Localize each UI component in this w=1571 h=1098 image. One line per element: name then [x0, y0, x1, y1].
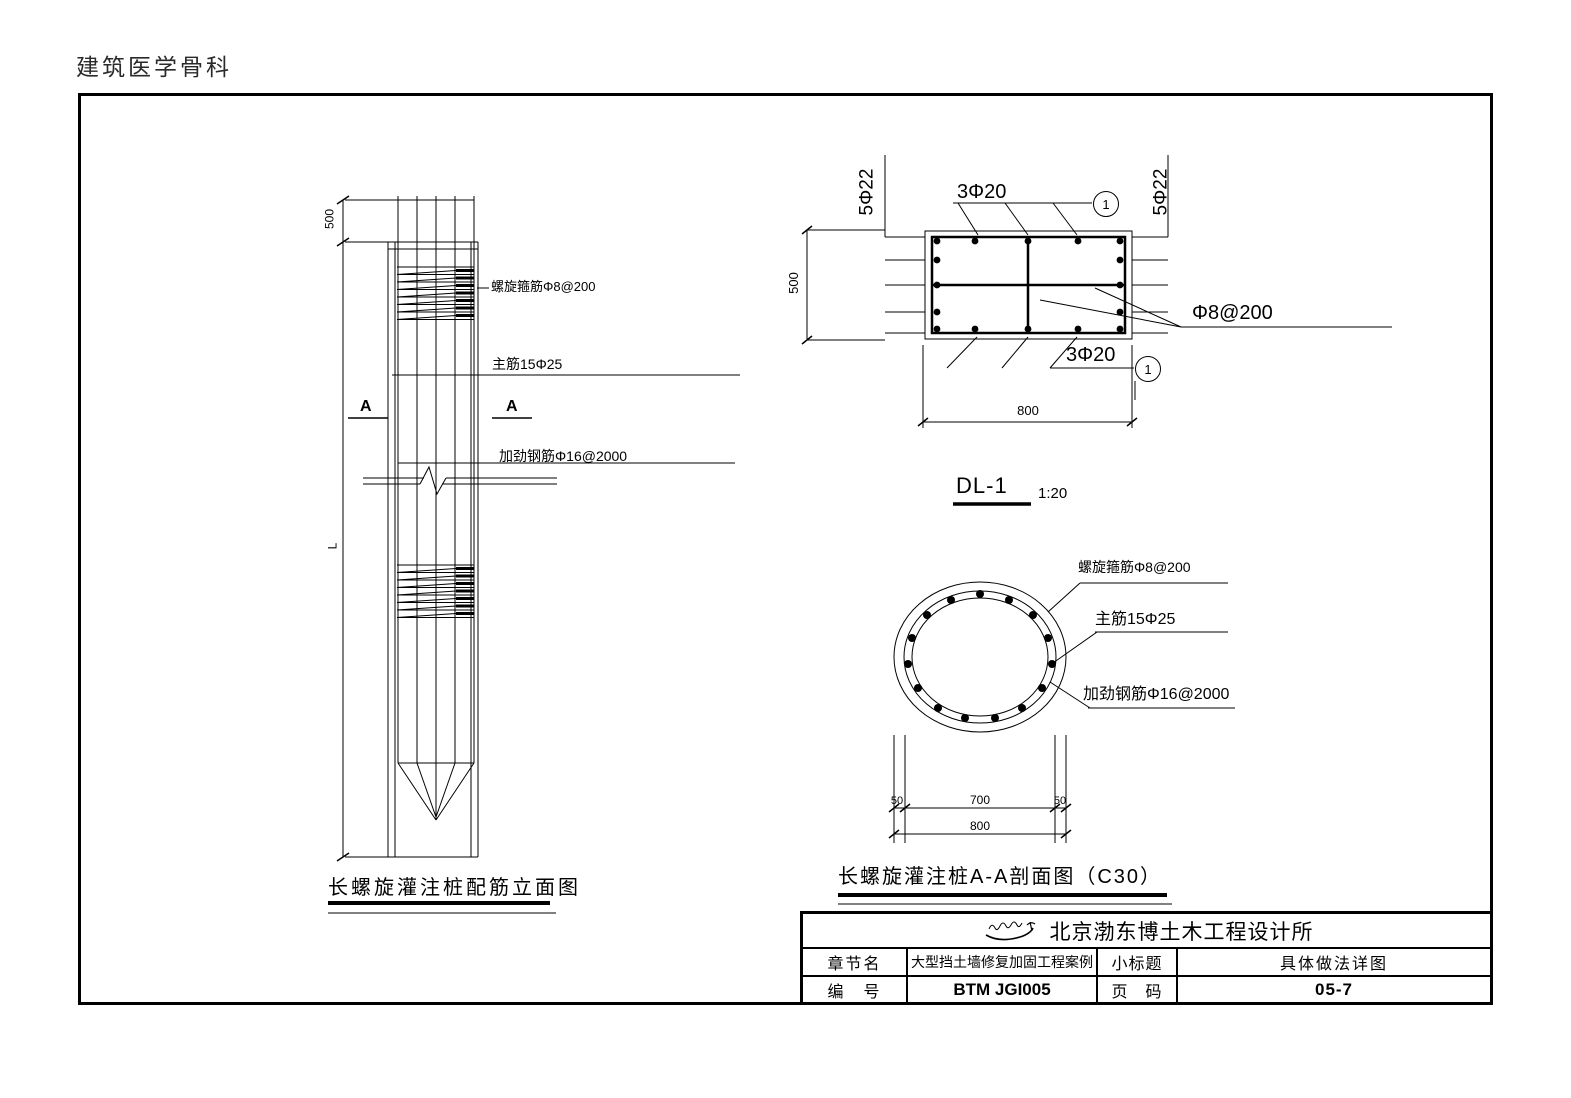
section-marker-a-right: A [506, 398, 518, 416]
dl1-scale-label: 1:20 [1038, 486, 1067, 503]
elevation-stiffener-annotation: 加劲钢筋Φ16@2000 [499, 449, 627, 464]
elevation-spiral-annotation: 螺旋箍筋Φ8@200 [491, 280, 596, 294]
callout-circle-1-bottom: 1 [1135, 356, 1161, 382]
circle-dim-800: 800 [970, 820, 990, 833]
dl1-stirrup-label: Φ8@200 [1192, 302, 1273, 324]
number-label: 编 号 [803, 977, 908, 1002]
dl1-dim-800: 800 [1017, 404, 1039, 418]
title-block-row-number: 编 号 BTM JGI005 页 码 05-7 [803, 977, 1490, 1002]
elevation-title: 长螺旋灌注桩配筋立面图 [328, 877, 581, 899]
elevation-dim-ticks [337, 196, 532, 861]
company-logo [980, 918, 1038, 944]
subtitle-label: 小标题 [1098, 949, 1178, 975]
dl1-dim-ticks [802, 226, 1137, 426]
section-marker-a-left: A [360, 398, 372, 416]
circular-section-lines [838, 582, 1235, 904]
circle-dim-50-right: 50 [1054, 795, 1066, 807]
section-aa-title: 长螺旋灌注桩A-A剖面图（C30） [838, 866, 1162, 888]
title-block: 北京渤东博土木工程设计所 章节名 大型挡土墙修复加固工程案例 小标题 具体做法详… [800, 911, 1493, 1005]
subtitle-value: 具体做法详图 [1178, 949, 1490, 975]
circle-dim-700: 700 [970, 794, 990, 807]
dl1-dim-500: 500 [787, 272, 801, 294]
elevation-main-bar-annotation: 主筋15Φ25 [492, 357, 562, 372]
drawing-sheet: 建筑医学骨科 [0, 0, 1571, 1098]
pile-elevation-lines [328, 196, 740, 913]
circle-dim-50-left: 50 [891, 795, 903, 807]
dl1-name-label: DL-1 [956, 474, 1008, 498]
chapter-value: 大型挡土墙修复加固工程案例 [908, 949, 1098, 975]
callout-number: 1 [1144, 362, 1151, 377]
elevation-dim-500: 500 [323, 209, 336, 229]
elevation-dim-length: L [326, 543, 339, 550]
page-label: 页 码 [1098, 977, 1178, 1002]
circle-spiral-annotation: 螺旋箍筋Φ8@200 [1078, 560, 1191, 575]
circle-stiffener-annotation: 加劲钢筋Φ16@2000 [1083, 686, 1229, 704]
dl1-side-bars-right: 5Φ22 [1152, 169, 1173, 216]
spiral-zone-lower-bars [456, 569, 474, 614]
spiral-zone-upper-bars [456, 271, 474, 316]
dl1-side-bars-left: 5Φ22 [858, 169, 879, 216]
page-value: 05-7 [1178, 977, 1490, 1002]
callout-number: 1 [1102, 197, 1109, 212]
title-block-company-row: 北京渤东博土木工程设计所 [803, 914, 1490, 949]
dl1-bottom-bars-label: 3Φ20 [1066, 344, 1115, 366]
title-block-row-chapter: 章节名 大型挡土墙修复加固工程案例 小标题 具体做法详图 [803, 949, 1490, 977]
dl1-top-bars-label: 3Φ20 [957, 181, 1006, 203]
chapter-label: 章节名 [803, 949, 908, 975]
company-name: 北京渤东博土木工程设计所 [1050, 916, 1314, 946]
number-value: BTM JGI005 [908, 977, 1098, 1002]
callout-circle-1-top: 1 [1093, 191, 1119, 217]
dl1-stirrups [932, 237, 1125, 333]
circle-main-bar-annotation: 主筋15Φ25 [1095, 611, 1175, 629]
